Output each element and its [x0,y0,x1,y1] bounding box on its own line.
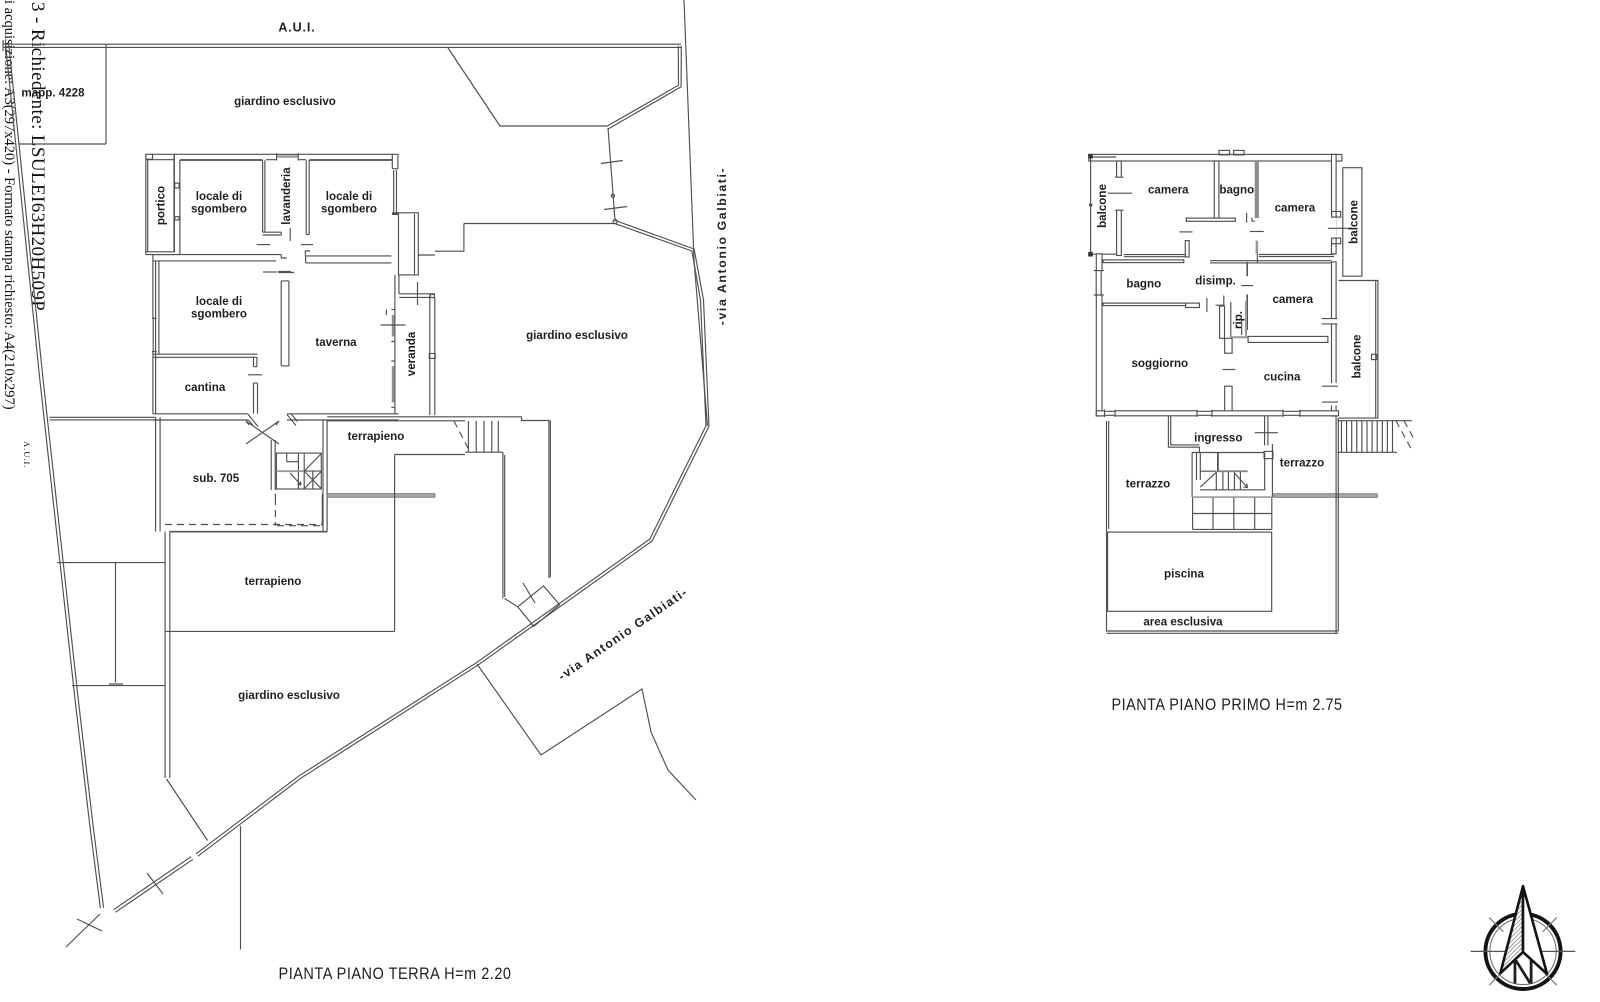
svg-text:balcone: balcone [1096,184,1109,228]
svg-text:giardino esclusivo: giardino esclusivo [526,329,628,342]
svg-text:mapp. 4228: mapp. 4228 [21,87,85,100]
svg-text:disimp.: disimp. [1195,275,1236,288]
svg-text:locale disgombero: locale disgombero [191,295,247,321]
svg-text:portico: portico [155,186,168,225]
svg-text:lavanderia: lavanderia [280,167,293,225]
svg-text:camera: camera [1272,293,1313,306]
svg-text:PIANTA PIANO TERRA H=m 2.20: PIANTA PIANO TERRA H=m 2.20 [279,964,512,983]
svg-text:camera: camera [1275,202,1316,215]
svg-text:giardino esclusivo: giardino esclusivo [234,95,336,108]
svg-text:bagno: bagno [1126,278,1161,291]
svg-text:cucina: cucina [1264,371,1301,384]
svg-text:cantina: cantina [185,381,226,394]
svg-text:locale disgombero: locale disgombero [191,190,247,216]
svg-text:balcone: balcone [1347,199,1360,243]
svg-text:camera: camera [1148,184,1189,197]
svg-text:PIANTA PIANO PRIMO H=m 2.75: PIANTA PIANO PRIMO H=m 2.75 [1112,695,1343,714]
svg-text:sub. 705: sub. 705 [193,472,240,485]
svg-text:terrazzo: terrazzo [1126,478,1170,491]
svg-text:balcone: balcone [1351,334,1364,378]
svg-text:bagno: bagno [1219,184,1254,197]
svg-text:veranda: veranda [405,331,418,376]
svg-text:giardino esclusivo: giardino esclusivo [238,689,340,702]
svg-text:terrazzo: terrazzo [1280,457,1324,470]
svg-text:3 - Richiedente: LSULEI63H20H5: 3 - Richiedente: LSULEI63H20H509P [27,2,48,311]
svg-text:-via Antonio Galbiati-: -via Antonio Galbiati- [715,167,729,325]
svg-text:A.U.I.: A.U.I. [278,21,315,35]
svg-text:rip.: rip. [1232,311,1245,329]
svg-text:A.U.I.: A.U.I. [22,441,32,468]
svg-text:locale disgombero: locale disgombero [321,190,377,216]
svg-text:terrapieno: terrapieno [348,430,405,443]
svg-text:area esclusiva: area esclusiva [1143,616,1223,629]
svg-text:taverna: taverna [315,336,357,349]
svg-text:soggiorno: soggiorno [1131,357,1188,370]
svg-text:terrapieno: terrapieno [245,575,302,588]
svg-text:i acquisizione: A3(297x420) -: i acquisizione: A3(297x420) - Formato st… [1,0,17,410]
svg-text:piscina: piscina [1164,568,1205,581]
svg-text:ingresso: ingresso [1194,432,1242,445]
